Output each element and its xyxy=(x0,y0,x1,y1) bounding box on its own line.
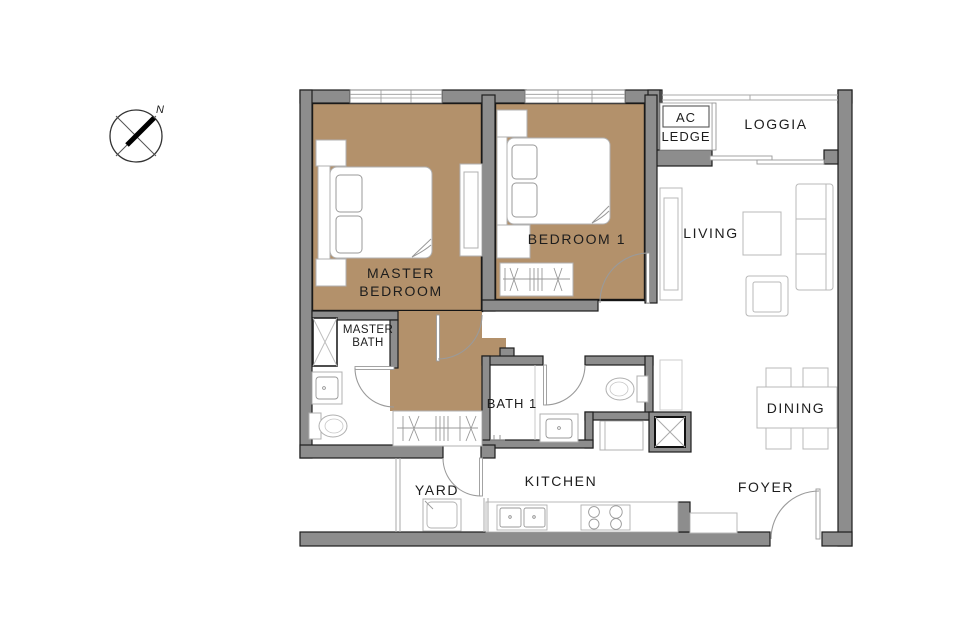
burner xyxy=(610,506,622,518)
wall-bath1-top-right xyxy=(585,356,653,365)
room-label-loggia: LOGGIA xyxy=(744,116,807,132)
wall-bedroom1-bottom xyxy=(482,300,598,311)
door-swing-bath1 xyxy=(545,365,585,405)
master-bedroom-window xyxy=(350,90,442,103)
burner xyxy=(611,519,622,530)
room-label-bath1: BATH 1 xyxy=(487,396,538,411)
floor-plan-drawing: N MASTER BEDROOM BEDROOM 1 MASTER BATH B… xyxy=(0,0,970,624)
kitchen-fixtures xyxy=(486,502,678,532)
sofa xyxy=(796,184,833,290)
faucet xyxy=(558,427,561,430)
room-label-bedroom1: BEDROOM 1 xyxy=(528,231,626,247)
door-leaf-entrance xyxy=(816,489,820,539)
sink-basin xyxy=(316,377,338,399)
bed-headboard xyxy=(318,166,330,259)
room-label-dining: DINING xyxy=(767,400,826,416)
door-leaf-bath1 xyxy=(544,365,547,405)
bed-headboard xyxy=(497,137,507,225)
hallway-floor xyxy=(390,311,482,411)
hall-wardrobe xyxy=(393,411,482,446)
pillow xyxy=(336,175,362,212)
master-bath-fixtures xyxy=(309,318,347,439)
wall-entrance-corner xyxy=(822,532,852,546)
room-label-ac: AC xyxy=(676,110,696,125)
room-label-master-bath-line1: MASTER xyxy=(343,324,393,336)
wardrobe-inner xyxy=(464,172,478,248)
wall-right xyxy=(838,90,852,546)
faucet xyxy=(323,387,326,390)
toilet-bowl-inner xyxy=(610,382,628,396)
pillow xyxy=(512,183,537,217)
toilet-bowl-inner xyxy=(325,419,343,433)
shoe-cabinet xyxy=(690,513,737,533)
door-leaf-master-bedroom xyxy=(437,315,440,361)
room-label-kitchen: KITCHEN xyxy=(525,473,598,489)
acledge-screen xyxy=(712,103,716,150)
sliding-door-panel xyxy=(710,156,772,160)
yard-open-edge xyxy=(396,458,400,532)
room-label-master-bedroom-line1: MASTER xyxy=(367,265,435,281)
wall-bath1-top-left xyxy=(482,356,543,365)
compass-north-label: N xyxy=(156,104,164,116)
compass: N xyxy=(110,104,164,162)
living-furniture xyxy=(660,184,833,316)
door-swing-entrance xyxy=(771,491,819,539)
wardrobe xyxy=(500,263,573,296)
pillow xyxy=(336,216,362,253)
door-swing-master-bath xyxy=(355,368,394,407)
floor-trap xyxy=(490,435,505,440)
wall-bottom-left-inner xyxy=(300,445,443,458)
room-label-foyer: FOYER xyxy=(738,479,794,495)
wall-left xyxy=(300,90,312,458)
wall-bath1-inner-h xyxy=(585,412,653,420)
coffee-table xyxy=(743,212,781,255)
side-cabinet xyxy=(660,360,682,410)
room-label-living: LIVING xyxy=(683,225,739,241)
drain xyxy=(533,516,536,519)
wall-kitchen-foyer-divider xyxy=(678,502,690,532)
services xyxy=(600,417,685,450)
nightstand xyxy=(316,259,346,286)
drain xyxy=(509,516,512,519)
fridge xyxy=(600,421,643,450)
burner xyxy=(589,507,600,518)
floor-plan: N MASTER BEDROOM BEDROOM 1 MASTER BATH B… xyxy=(0,0,970,624)
room-label-yard: YARD xyxy=(415,482,459,498)
nightstand xyxy=(497,110,527,137)
burner xyxy=(589,519,599,529)
wall-loggia-jog xyxy=(824,150,838,164)
sliding-door-panel xyxy=(757,160,824,164)
door-leaf-bedroom1 xyxy=(647,253,650,303)
toilet-tank xyxy=(637,376,648,402)
tv-console-inner xyxy=(664,198,678,290)
room-label-master-bath-line2: BATH xyxy=(352,337,383,349)
door-leaf-master-bath xyxy=(355,367,394,370)
nightstand xyxy=(316,140,346,166)
room-label-ledge: LEDGE xyxy=(661,129,710,144)
loggia-parapet xyxy=(662,95,838,100)
bedroom1-window xyxy=(525,90,625,103)
wall-between-bedrooms xyxy=(482,95,495,311)
wall-yard-jamb xyxy=(481,445,495,458)
washer-drum xyxy=(427,502,457,528)
nightstand xyxy=(497,225,530,258)
wardrobe xyxy=(393,411,482,446)
door-leaf-yard xyxy=(480,458,483,496)
pillow xyxy=(512,145,537,179)
wall-bottom xyxy=(300,532,770,546)
room-label-master-bedroom-line2: BEDROOM xyxy=(359,283,443,299)
stove xyxy=(581,505,630,530)
armchair-seat xyxy=(753,282,781,312)
